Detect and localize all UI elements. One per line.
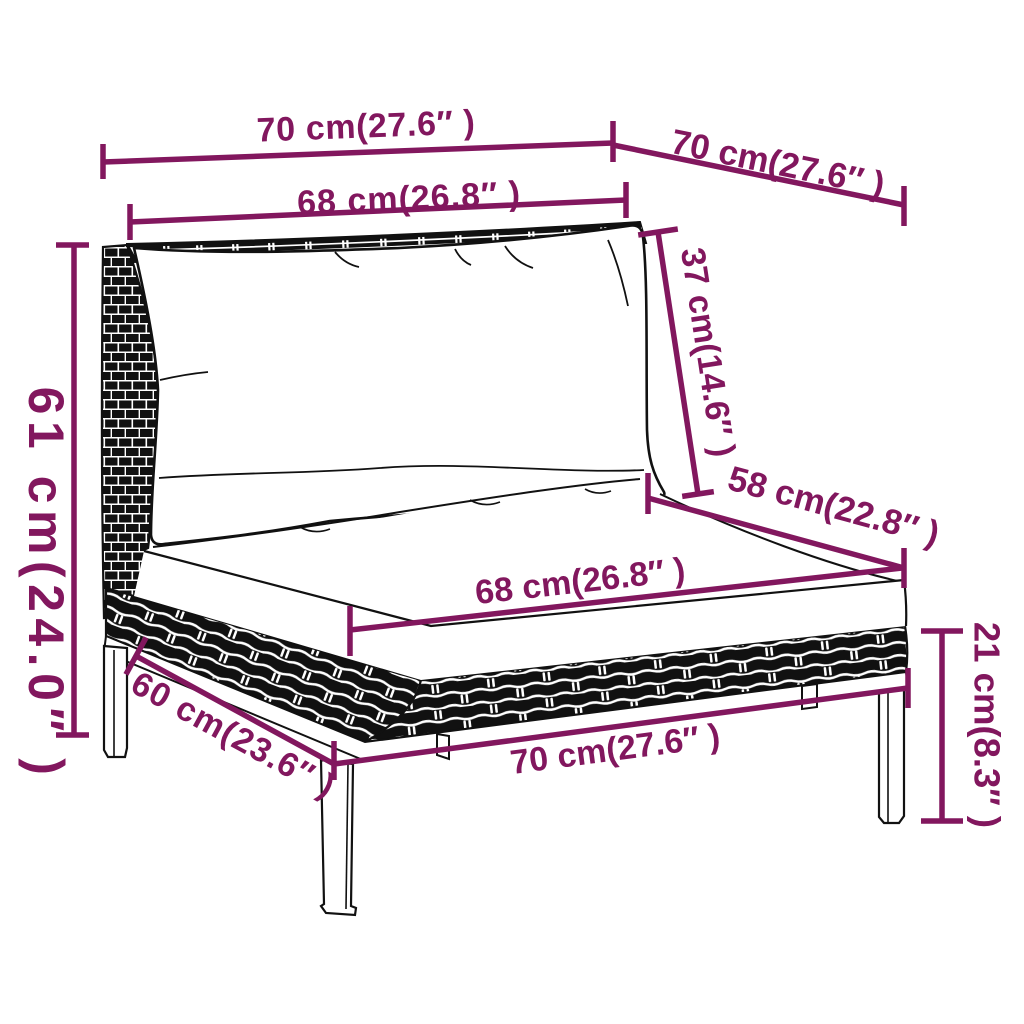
svg-text:21 cm(8.3″ ): 21 cm(8.3″ ) bbox=[967, 622, 1008, 828]
svg-text:61 cm(24.0″ ): 61 cm(24.0″ ) bbox=[18, 387, 74, 782]
